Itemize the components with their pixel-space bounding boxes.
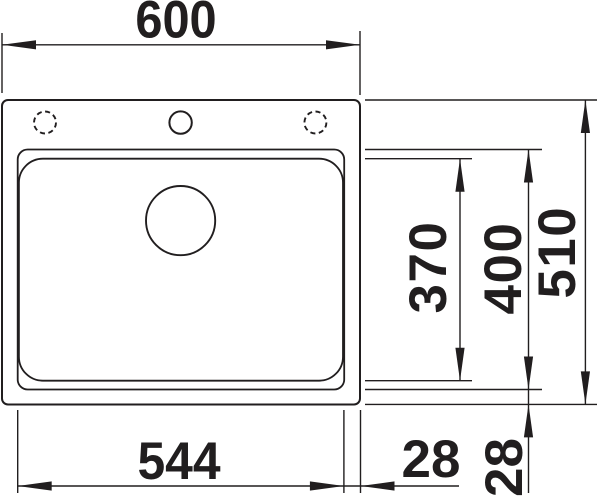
svg-text:544: 544 [137,431,220,491]
svg-text:600: 600 [135,0,216,49]
svg-text:28: 28 [475,438,534,497]
svg-text:400: 400 [474,222,533,315]
svg-text:510: 510 [528,206,587,299]
svg-text:28: 28 [402,430,461,489]
svg-text:370: 370 [399,221,458,314]
